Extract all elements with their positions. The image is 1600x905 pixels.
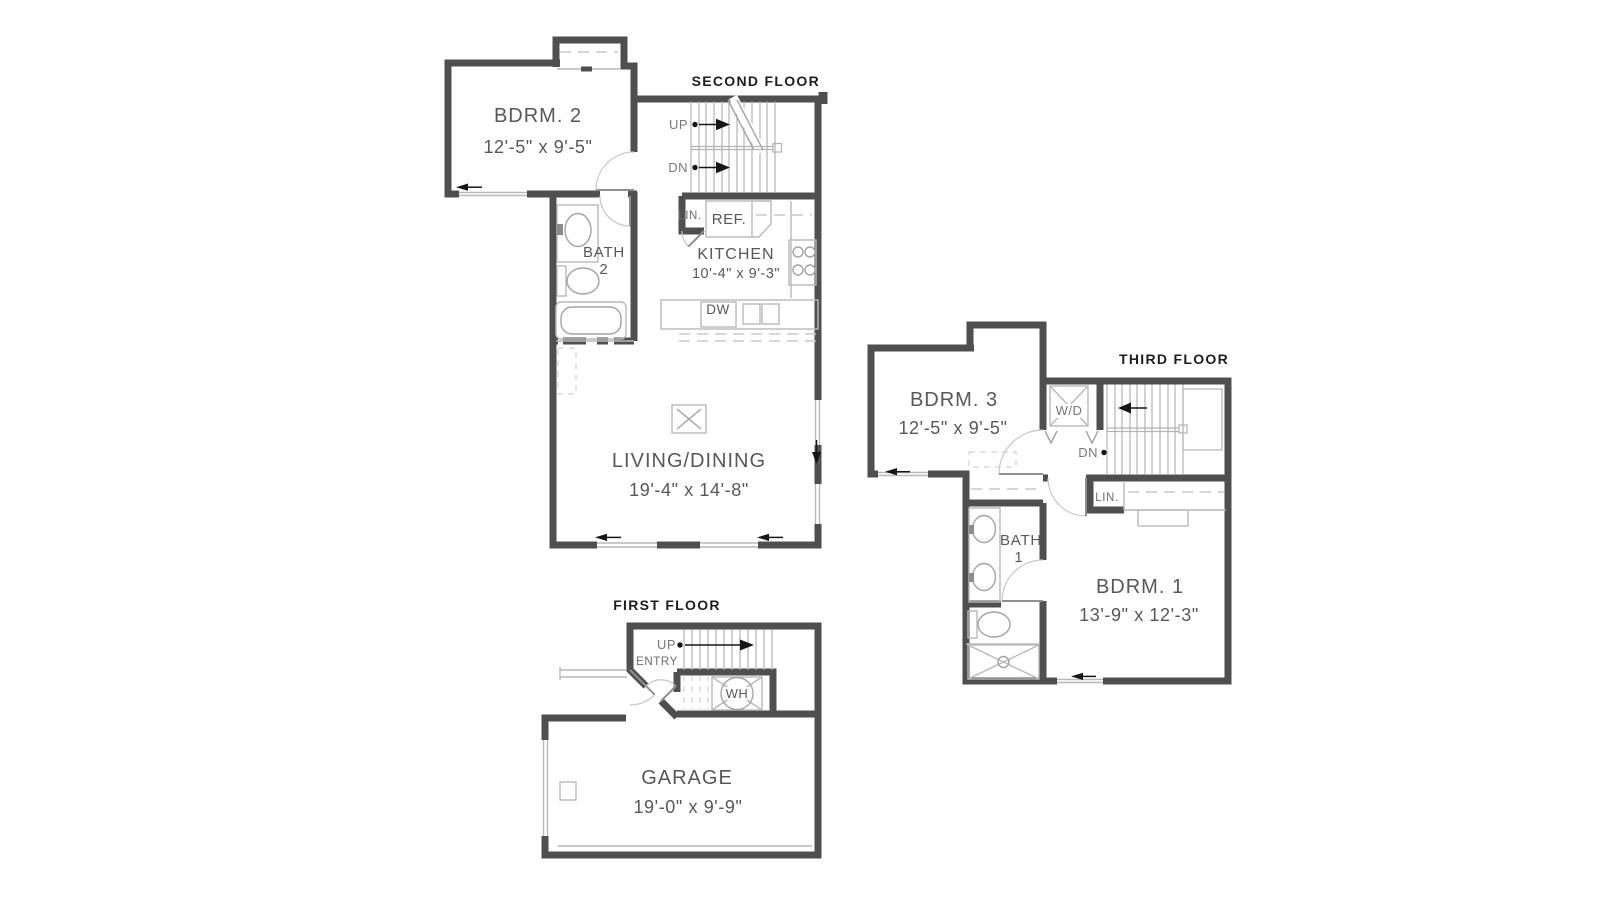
toilet-tank-icon xyxy=(557,266,566,296)
room-label-bdrm3: BDRM. 3 xyxy=(910,389,998,411)
bdrm2-closet xyxy=(557,52,620,72)
label-lin-second: LIN. xyxy=(678,210,702,222)
kitchen-counter xyxy=(661,300,818,329)
up-arrow-icon-first xyxy=(740,640,754,651)
closet-slider xyxy=(1138,510,1188,526)
label-up-first: UP xyxy=(657,637,676,652)
floor-title-second: SECOND FLOOR xyxy=(692,73,820,89)
label-entry: ENTRY xyxy=(636,656,678,668)
stairs-third-floor xyxy=(1101,385,1222,475)
garage-door xyxy=(544,740,548,836)
garage-entry-door xyxy=(661,686,676,701)
floor-title-third: THIRD FLOOR xyxy=(1119,351,1229,367)
room-label-bath1: BATH xyxy=(1000,532,1042,549)
room-label-kitchen: KITCHEN xyxy=(697,246,774,263)
porch-lines xyxy=(560,667,627,680)
dn-start-dot xyxy=(692,165,697,170)
room-label-garage: GARAGE xyxy=(641,767,733,789)
toilet-icon xyxy=(567,268,599,294)
dn-arrow-icon xyxy=(716,162,730,173)
label-dw: DW xyxy=(706,302,730,317)
bdrm3-dresser-dashed xyxy=(969,452,1016,467)
washer-dryer-closet: W/D xyxy=(1045,386,1098,443)
up-start-dot xyxy=(692,122,697,127)
pantry-cabinet xyxy=(752,201,771,237)
room-dims-kitchen: 10'-4" x 9'-3" xyxy=(692,266,780,282)
room-label-bdrm1: BDRM. 1 xyxy=(1096,576,1184,598)
bar-counter-dashed xyxy=(679,334,816,341)
room-label-living: LIVING/DINING xyxy=(612,450,766,472)
bifold-door-marks xyxy=(1045,431,1098,443)
label-lin-third: LIN. xyxy=(1095,492,1119,504)
first-floor-walls xyxy=(545,626,818,855)
dn-start-dot-third xyxy=(1101,450,1106,455)
label-wh: WH xyxy=(726,686,749,701)
wall-pilaster xyxy=(819,92,828,104)
room-label-bath1-number: 1 xyxy=(1014,549,1023,566)
water-heater-closet: WH xyxy=(712,677,762,710)
label-dn-third: DN xyxy=(1078,445,1098,460)
room-label-bath2: BATH xyxy=(583,244,625,261)
room-label-bath2-number: 2 xyxy=(599,261,608,278)
toilet-icon xyxy=(978,612,1010,637)
room-dims-bdrm3: 12'-5" x 9'-5" xyxy=(898,418,1007,438)
third-floor-plan: W/D xyxy=(871,325,1229,683)
first-floor-plan: WH FIRST FLOOR UP ENTRY GARAGE 19'-0" x … xyxy=(544,597,819,855)
third-floor-walls xyxy=(871,325,1228,681)
sink-icon xyxy=(565,214,591,247)
label-up-second: UP xyxy=(669,117,688,132)
sink-icon xyxy=(973,564,996,591)
garage-utility-box xyxy=(560,782,576,800)
stair-arrow-icon xyxy=(1118,403,1131,414)
kitchen-sink-icon xyxy=(743,304,760,324)
up-arrow-icon xyxy=(716,119,730,130)
room-dims-bdrm1: 13'-9" x 12'-3" xyxy=(1079,605,1199,625)
room-dims-living: 19'-4" x 14'-8" xyxy=(629,480,749,500)
label-dn-second: DN xyxy=(668,160,688,175)
floor-plan-page: SECOND FLOOR BDRM. 2 12'-5" x 9'-5" BATH… xyxy=(0,0,1600,905)
up-start-dot-first xyxy=(677,642,682,647)
room-label-bdrm2: BDRM. 2 xyxy=(494,105,582,127)
stairs-second-floor xyxy=(691,97,782,192)
label-wd: W/D xyxy=(1056,403,1083,418)
label-ref: REF. xyxy=(712,211,747,228)
sink-icon xyxy=(973,516,996,543)
room-dims-garage: 19'-0" x 9'-9" xyxy=(633,797,742,817)
room-dims-bdrm2: 12'-5" x 9'-5" xyxy=(483,137,592,157)
floor-title-first: FIRST FLOOR xyxy=(613,597,721,613)
second-floor-plan: SECOND FLOOR BDRM. 2 12'-5" x 9'-5" BATH… xyxy=(448,40,828,547)
bath2-fixtures xyxy=(556,205,626,339)
floor-plan-canvas: SECOND FLOOR BDRM. 2 12'-5" x 9'-5" BATH… xyxy=(0,0,1600,905)
